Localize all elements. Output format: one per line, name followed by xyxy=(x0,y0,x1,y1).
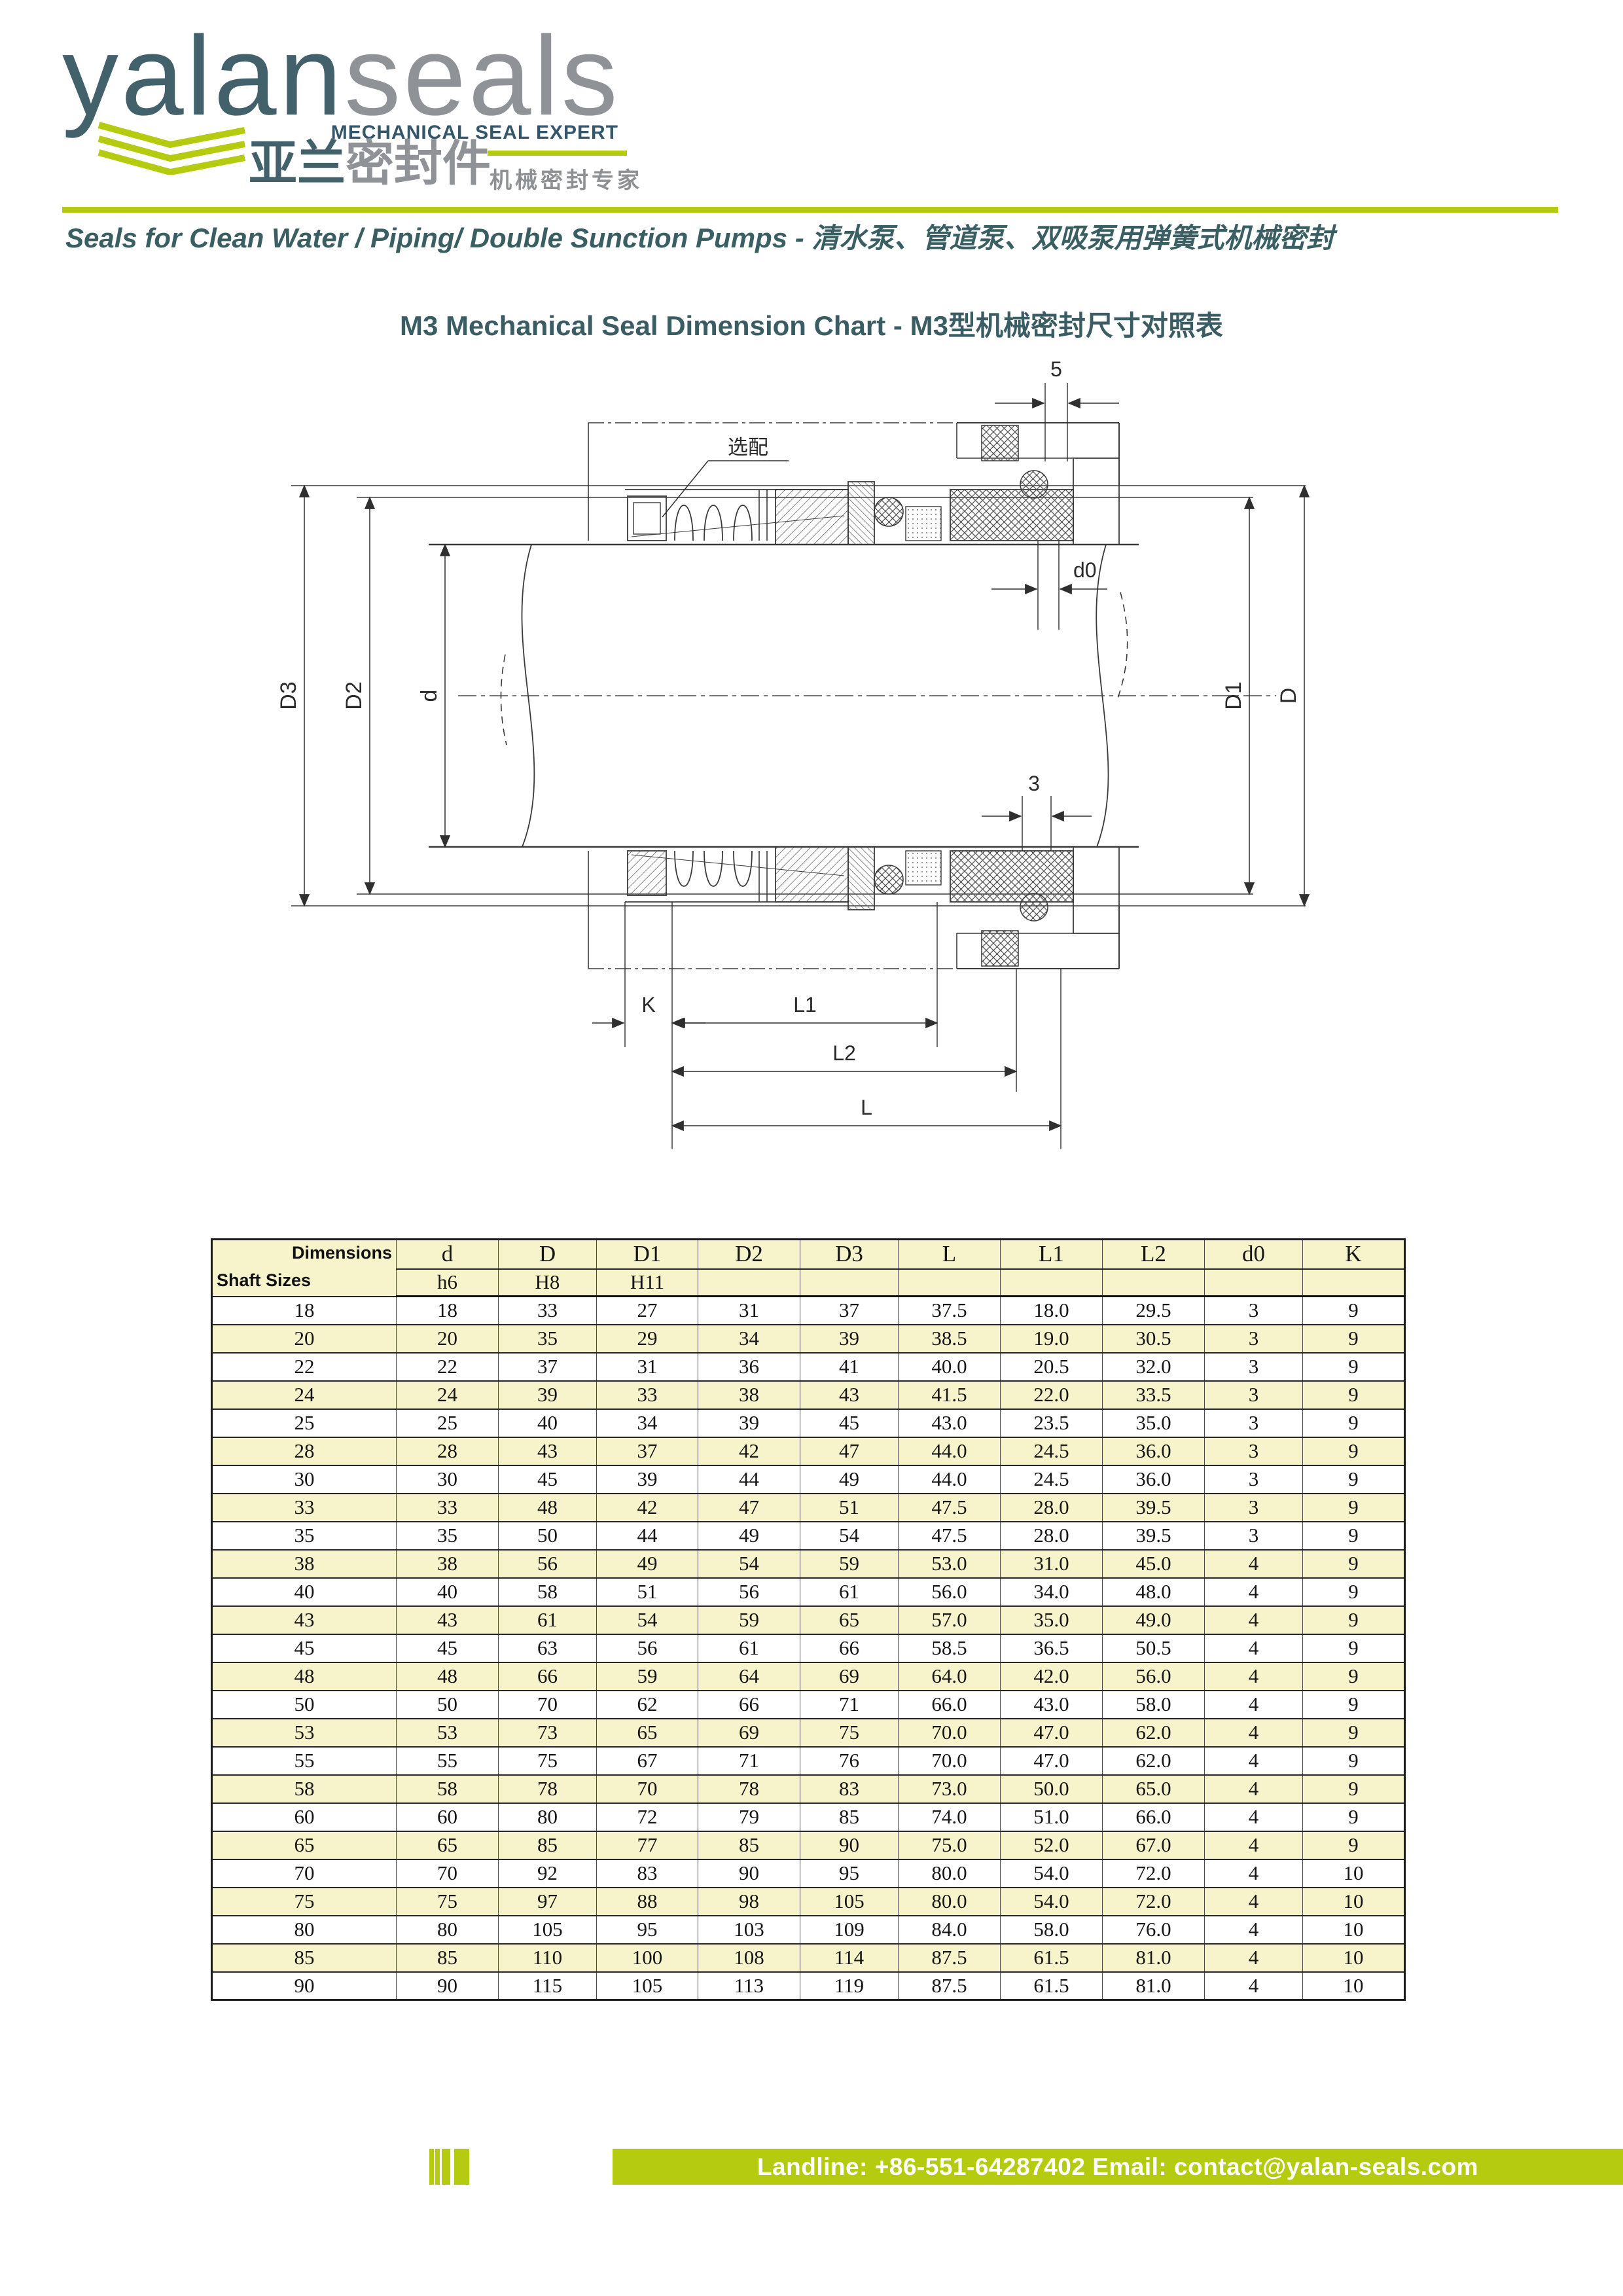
dimension-cell: 72 xyxy=(597,1803,698,1831)
dimension-cell: 70 xyxy=(397,1859,499,1888)
dimension-cell: 39 xyxy=(800,1325,899,1353)
dimension-cell: 47.0 xyxy=(1001,1747,1103,1775)
dimension-cell: 44 xyxy=(698,1465,800,1494)
logo-cn-underline xyxy=(488,151,627,156)
dimension-cell: 4 xyxy=(1205,1606,1303,1634)
dimension-cell: 4 xyxy=(1205,1691,1303,1719)
dimension-cell: 24 xyxy=(397,1381,499,1409)
dimension-cell: 47.5 xyxy=(899,1494,1001,1522)
dimension-cell: 34 xyxy=(698,1325,800,1353)
dimension-cell: 4 xyxy=(1205,1578,1303,1606)
dimension-cell: 9 xyxy=(1303,1747,1405,1775)
dimension-cell: 47 xyxy=(800,1437,899,1465)
dimension-cell: 54 xyxy=(597,1606,698,1634)
dimension-cell: 28.0 xyxy=(1001,1494,1103,1522)
dimension-cell: 56.0 xyxy=(1103,1662,1205,1691)
shaft-size-cell: 48 xyxy=(212,1662,397,1691)
dimension-cell: 43.0 xyxy=(1001,1691,1103,1719)
column-header: D1 xyxy=(597,1240,698,1269)
shaft-size-cell: 65 xyxy=(212,1831,397,1859)
dimension-cell: 4 xyxy=(1205,1803,1303,1831)
dimension-cell: 31.0 xyxy=(1001,1550,1103,1578)
label-L1: L1 xyxy=(793,993,817,1016)
dimension-cell: 110 xyxy=(499,1944,597,1972)
dimension-cell: 62.0 xyxy=(1103,1747,1205,1775)
dimension-cell: 37 xyxy=(499,1353,597,1381)
dimension-cell: 9 xyxy=(1303,1353,1405,1381)
dimension-cell: 30 xyxy=(397,1465,499,1494)
column-header: D xyxy=(499,1240,597,1269)
dimension-cell: 85 xyxy=(800,1803,899,1831)
table-row: 80801059510310984.058.076.0410 xyxy=(212,1916,1405,1944)
dimension-cell: 65 xyxy=(800,1606,899,1634)
dimension-cell: 84.0 xyxy=(899,1916,1001,1944)
dimension-cell: 105 xyxy=(499,1916,597,1944)
dimension-cell: 10 xyxy=(1303,1944,1405,1972)
dimension-cell: 35.0 xyxy=(1001,1606,1103,1634)
corner-cell: DimensionsShaft Sizes xyxy=(212,1240,397,1297)
dimension-cell: 65 xyxy=(397,1831,499,1859)
column-header: K xyxy=(1303,1240,1405,1269)
dimension-cell: 47 xyxy=(698,1494,800,1522)
dimension-cell: 39.5 xyxy=(1103,1522,1205,1550)
footer-stripe xyxy=(442,2149,450,2185)
logo-wordmark: yalanseals xyxy=(62,20,620,132)
dimension-cell: 36.0 xyxy=(1103,1465,1205,1494)
dimension-cell: 10 xyxy=(1303,1888,1405,1916)
dimension-cell: 23.5 xyxy=(1001,1409,1103,1437)
dimension-cell: 55 xyxy=(397,1747,499,1775)
table-row: 28284337424744.024.536.039 xyxy=(212,1437,1405,1465)
table-row: 55557567717670.047.062.049 xyxy=(212,1747,1405,1775)
dimension-cell: 24.5 xyxy=(1001,1465,1103,1494)
dimension-cell: 80.0 xyxy=(899,1888,1001,1916)
dimension-cell: 25 xyxy=(397,1409,499,1437)
dimension-cell: 9 xyxy=(1303,1803,1405,1831)
dimension-cell: 3 xyxy=(1205,1353,1303,1381)
column-header: d xyxy=(397,1240,499,1269)
dimension-cell: 9 xyxy=(1303,1409,1405,1437)
dimension-cell: 60 xyxy=(397,1803,499,1831)
shaft-size-cell: 80 xyxy=(212,1916,397,1944)
table-row: 20203529343938.519.030.539 xyxy=(212,1325,1405,1353)
dimension-cell: 61.5 xyxy=(1001,1944,1103,1972)
dimension-cell: 3 xyxy=(1205,1325,1303,1353)
dimension-cell: 43.0 xyxy=(899,1409,1001,1437)
label-D1: D1 xyxy=(1221,681,1246,709)
dimension-cell: 44.0 xyxy=(899,1437,1001,1465)
shaft-size-cell: 40 xyxy=(212,1578,397,1606)
dimension-cell: 9 xyxy=(1303,1634,1405,1662)
dimension-cell: 73 xyxy=(499,1719,597,1747)
dimension-cell: 9 xyxy=(1303,1775,1405,1803)
dimension-cell: 61 xyxy=(698,1634,800,1662)
dimension-cell: 3 xyxy=(1205,1409,1303,1437)
dimension-cell: 67.0 xyxy=(1103,1831,1205,1859)
dimension-cell: 40 xyxy=(397,1578,499,1606)
table-row: 45456356616658.536.550.549 xyxy=(212,1634,1405,1662)
label-optional: 选配 xyxy=(728,436,768,459)
tolerance-header xyxy=(1103,1269,1205,1297)
dimension-cell: 3 xyxy=(1205,1522,1303,1550)
dimension-cell: 64 xyxy=(698,1662,800,1691)
dimension-cell: 80 xyxy=(397,1916,499,1944)
shaft-size-cell: 75 xyxy=(212,1888,397,1916)
label-5: 5 xyxy=(1050,357,1062,381)
dimension-cell: 85 xyxy=(698,1831,800,1859)
dimension-cell: 51 xyxy=(597,1578,698,1606)
dimension-cell: 65 xyxy=(597,1719,698,1747)
dimension-cell: 4 xyxy=(1205,1719,1303,1747)
dimension-cell: 47.0 xyxy=(1001,1719,1103,1747)
dimension-cell: 75.0 xyxy=(899,1831,1001,1859)
dimension-cell: 90 xyxy=(800,1831,899,1859)
corner-label-dimensions: Dimensions xyxy=(292,1243,392,1263)
dimension-cell: 62.0 xyxy=(1103,1719,1205,1747)
dimension-cell: 85 xyxy=(397,1944,499,1972)
dimension-cell: 4 xyxy=(1205,1859,1303,1888)
dimension-cell: 54.0 xyxy=(1001,1859,1103,1888)
logo-cn-secondary: 密封件 xyxy=(346,136,491,190)
footer-bar: Landline: +86-551-64287402 Email: contac… xyxy=(613,2149,1623,2185)
dimension-cell: 20 xyxy=(397,1325,499,1353)
dimension-cell: 50 xyxy=(397,1691,499,1719)
shaft-size-cell: 50 xyxy=(212,1691,397,1719)
dimension-cell: 54.0 xyxy=(1001,1888,1103,1916)
dimension-cell: 71 xyxy=(800,1691,899,1719)
label-3: 3 xyxy=(1028,772,1040,795)
dimension-cell: 28.0 xyxy=(1001,1522,1103,1550)
shaft-size-cell: 35 xyxy=(212,1522,397,1550)
dimension-cell: 54 xyxy=(698,1550,800,1578)
dimension-cell: 10 xyxy=(1303,1972,1405,2000)
dimension-cell: 48.0 xyxy=(1103,1578,1205,1606)
dimension-cell: 98 xyxy=(698,1888,800,1916)
shaft-size-cell: 20 xyxy=(212,1325,397,1353)
dimension-cell: 63 xyxy=(499,1634,597,1662)
dimension-cell: 50.0 xyxy=(1001,1775,1103,1803)
table-row: 858511010010811487.561.581.0410 xyxy=(212,1944,1405,1972)
dimension-cell: 28 xyxy=(397,1437,499,1465)
dimension-cell: 57.0 xyxy=(899,1606,1001,1634)
o-ring xyxy=(874,497,903,526)
dimension-cell: 103 xyxy=(698,1916,800,1944)
dimension-cell: 36.5 xyxy=(1001,1634,1103,1662)
dimension-cell: 9 xyxy=(1303,1494,1405,1522)
shaft-size-cell: 38 xyxy=(212,1550,397,1578)
dimension-cell: 29.5 xyxy=(1103,1297,1205,1325)
footer-stripe xyxy=(435,2149,440,2185)
dimension-cell: 83 xyxy=(800,1775,899,1803)
dimension-cell: 49.0 xyxy=(1103,1606,1205,1634)
dimension-cell: 10 xyxy=(1303,1916,1405,1944)
dimension-cell: 58 xyxy=(397,1775,499,1803)
table-row: 48486659646964.042.056.049 xyxy=(212,1662,1405,1691)
label-K: K xyxy=(641,993,655,1016)
dimension-cell: 66.0 xyxy=(1103,1803,1205,1831)
dimension-cell: 70.0 xyxy=(899,1747,1001,1775)
dimension-cell: 95 xyxy=(597,1916,698,1944)
dimension-cell: 40 xyxy=(499,1409,597,1437)
dimension-cell: 75 xyxy=(499,1747,597,1775)
dimension-cell: 51 xyxy=(800,1494,899,1522)
dimension-cell: 4 xyxy=(1205,1550,1303,1578)
table-row: 38385649545953.031.045.049 xyxy=(212,1550,1405,1578)
corner-label-shaft-sizes: Shaft Sizes xyxy=(217,1270,311,1291)
dimension-cell: 71 xyxy=(698,1747,800,1775)
dimension-cell: 48 xyxy=(499,1494,597,1522)
column-header: L xyxy=(899,1240,1001,1269)
dimension-cell: 59 xyxy=(800,1550,899,1578)
dimension-cell: 47.5 xyxy=(899,1522,1001,1550)
dimension-cell: 34 xyxy=(597,1409,698,1437)
column-header: L2 xyxy=(1103,1240,1205,1269)
dimension-cell: 4 xyxy=(1205,1775,1303,1803)
dimension-cell: 9 xyxy=(1303,1719,1405,1747)
table-row: 65658577859075.052.067.049 xyxy=(212,1831,1405,1859)
dimension-cell: 45.0 xyxy=(1103,1550,1205,1578)
dimension-cell: 58.5 xyxy=(899,1634,1001,1662)
technical-drawing: D3 D2 d D1 D 5 d0 3 K L1 L2 L 选配 xyxy=(262,353,1400,1230)
dimension-cell: 9 xyxy=(1303,1691,1405,1719)
dimension-cell: 38 xyxy=(698,1381,800,1409)
dimension-cell: 9 xyxy=(1303,1831,1405,1859)
table-row: 18183327313737.518.029.539 xyxy=(212,1297,1405,1325)
label-d: d xyxy=(417,690,442,702)
drive-collar xyxy=(776,490,848,545)
table-row: 33334842475147.528.039.539 xyxy=(212,1494,1405,1522)
dimension-cell: 44 xyxy=(597,1522,698,1550)
shaft-size-cell: 24 xyxy=(212,1381,397,1409)
dimension-cell: 87.5 xyxy=(899,1944,1001,1972)
dimension-cell: 76.0 xyxy=(1103,1916,1205,1944)
dimension-cell: 9 xyxy=(1303,1578,1405,1606)
shaft-size-cell: 53 xyxy=(212,1719,397,1747)
dimension-cell: 59 xyxy=(597,1662,698,1691)
tolerance-header xyxy=(1205,1269,1303,1297)
label-D3: D3 xyxy=(276,681,301,709)
product-tagline: Seals for Clean Water / Piping/ Double S… xyxy=(65,216,1334,256)
dimension-cell: 38 xyxy=(397,1550,499,1578)
dimension-cell: 4 xyxy=(1205,1916,1303,1944)
dimension-cell: 18.0 xyxy=(1001,1297,1103,1325)
footer-contact: Landline: +86-551-64287402 Email: contac… xyxy=(757,2149,1478,2185)
shaft-size-cell: 33 xyxy=(212,1494,397,1522)
dimension-cell: 22.0 xyxy=(1001,1381,1103,1409)
page-title: M3 Mechanical Seal Dimension Chart - M3型… xyxy=(0,304,1623,344)
table-row: 50507062667166.043.058.049 xyxy=(212,1691,1405,1719)
dimension-cell: 43 xyxy=(499,1437,597,1465)
tolerance-header xyxy=(1303,1269,1405,1297)
footer-stripe xyxy=(454,2149,469,2185)
dimension-cell: 32.0 xyxy=(1103,1353,1205,1381)
table-row: 757597889810580.054.072.0410 xyxy=(212,1888,1405,1916)
logo-seals: seals xyxy=(344,13,620,139)
dimension-cell: 40.0 xyxy=(899,1353,1001,1381)
dimension-cell: 42 xyxy=(698,1437,800,1465)
column-header: D3 xyxy=(800,1240,899,1269)
table-row: 58587870788373.050.065.049 xyxy=(212,1775,1405,1803)
dimension-cell: 72.0 xyxy=(1103,1888,1205,1916)
dimension-cell: 80.0 xyxy=(899,1859,1001,1888)
dimension-cell: 4 xyxy=(1205,1888,1303,1916)
dimension-cell: 37 xyxy=(800,1297,899,1325)
dimension-cell: 45 xyxy=(800,1409,899,1437)
dimension-cell: 33 xyxy=(397,1494,499,1522)
dimension-cell: 3 xyxy=(1205,1297,1303,1325)
dimension-cell: 9 xyxy=(1303,1381,1405,1409)
dimension-cell: 69 xyxy=(800,1662,899,1691)
dimension-cell: 100 xyxy=(597,1944,698,1972)
shaft-size-cell: 25 xyxy=(212,1409,397,1437)
dimension-table: DimensionsShaft SizesdDD1D2D3LL1L2d0Kh6H… xyxy=(211,1238,1406,2001)
dimension-cell: 4 xyxy=(1205,1944,1303,1972)
dimension-cell: 97 xyxy=(499,1888,597,1916)
dimension-cell: 31 xyxy=(597,1353,698,1381)
dimension-cell: 70.0 xyxy=(899,1719,1001,1747)
dimension-cell: 43 xyxy=(397,1606,499,1634)
dimension-cell: 44.0 xyxy=(899,1465,1001,1494)
table-row: 25254034394543.023.535.039 xyxy=(212,1409,1405,1437)
dimension-cell: 56 xyxy=(499,1550,597,1578)
table-row: 22223731364140.020.532.039 xyxy=(212,1353,1405,1381)
shaft-size-cell: 85 xyxy=(212,1944,397,1972)
divider-rule xyxy=(62,207,1558,213)
dimension-cell: 66 xyxy=(499,1662,597,1691)
dimension-cell: 48 xyxy=(397,1662,499,1691)
dimension-cell: 95 xyxy=(800,1859,899,1888)
dimension-cell: 45 xyxy=(397,1634,499,1662)
dimension-cell: 35 xyxy=(499,1325,597,1353)
dimension-cell: 90 xyxy=(397,1972,499,2000)
dimension-cell: 9 xyxy=(1303,1437,1405,1465)
dimension-cell: 92 xyxy=(499,1859,597,1888)
dimension-cell: 34.0 xyxy=(1001,1578,1103,1606)
dimension-cell: 66 xyxy=(800,1634,899,1662)
table-row: 60608072798574.051.066.049 xyxy=(212,1803,1405,1831)
shaft-size-cell: 30 xyxy=(212,1465,397,1494)
column-header: D2 xyxy=(698,1240,800,1269)
label-L2: L2 xyxy=(832,1041,856,1065)
dimension-cell: 9 xyxy=(1303,1550,1405,1578)
dimension-cell: 80 xyxy=(499,1803,597,1831)
dimension-cell: 10 xyxy=(1303,1859,1405,1888)
spring-coil xyxy=(675,505,693,541)
stationary-seat xyxy=(950,490,1073,541)
dimension-cell: 18 xyxy=(397,1297,499,1325)
dimension-cell: 115 xyxy=(499,1972,597,2000)
dimension-cell: 4 xyxy=(1205,1662,1303,1691)
dimension-cell: 70 xyxy=(597,1775,698,1803)
gland-plate xyxy=(1073,458,1119,545)
dimension-cell: 70 xyxy=(499,1691,597,1719)
dimension-cell: 31 xyxy=(698,1297,800,1325)
drawing-geometry xyxy=(291,423,1306,969)
dimension-cell: 29 xyxy=(597,1325,698,1353)
label-d0: d0 xyxy=(1073,558,1097,582)
dimension-cell: 37.5 xyxy=(899,1297,1001,1325)
dimension-cell: 65.0 xyxy=(1103,1775,1205,1803)
dimension-cell: 30.5 xyxy=(1103,1325,1205,1353)
dimension-cell: 9 xyxy=(1303,1297,1405,1325)
dimension-cell: 61 xyxy=(800,1578,899,1606)
dimension-cell: 52.0 xyxy=(1001,1831,1103,1859)
dimension-cell: 83 xyxy=(597,1859,698,1888)
dimension-cell: 78 xyxy=(499,1775,597,1803)
dimension-cell: 22 xyxy=(397,1353,499,1381)
dimension-cell: 33.5 xyxy=(1103,1381,1205,1409)
dimension-cell: 39 xyxy=(499,1381,597,1409)
dimension-cell: 88 xyxy=(597,1888,698,1916)
dimension-cell: 81.0 xyxy=(1103,1944,1205,1972)
logo-chevron-icon xyxy=(97,120,247,175)
catalog-page: yalanseals MECHANICAL SEAL EXPERT 亚兰密封件 … xyxy=(0,0,1623,2296)
dimension-cell: 49 xyxy=(800,1465,899,1494)
dimension-cell: 114 xyxy=(800,1944,899,1972)
dimension-cell: 105 xyxy=(597,1972,698,2000)
dimension-cell: 69 xyxy=(698,1719,800,1747)
dimension-cell: 33 xyxy=(597,1381,698,1409)
dimension-cell: 76 xyxy=(800,1747,899,1775)
dimension-cell: 90 xyxy=(698,1859,800,1888)
tolerance-header: h6 xyxy=(397,1269,499,1297)
table-row: 909011510511311987.561.581.0410 xyxy=(212,1972,1405,2000)
dimension-cell: 75 xyxy=(397,1888,499,1916)
tolerance-header xyxy=(698,1269,800,1297)
dimension-cell: 119 xyxy=(800,1972,899,2000)
dimension-cell: 19.0 xyxy=(1001,1325,1103,1353)
dimension-cell: 79 xyxy=(698,1803,800,1831)
shaft-size-cell: 58 xyxy=(212,1775,397,1803)
dimension-cell: 39 xyxy=(698,1409,800,1437)
dimension-cell: 24.5 xyxy=(1001,1437,1103,1465)
label-D2: D2 xyxy=(342,681,366,709)
dimension-cell: 74.0 xyxy=(899,1803,1001,1831)
dimension-cell: 9 xyxy=(1303,1662,1405,1691)
dimension-cell: 38.5 xyxy=(899,1325,1001,1353)
dimension-cell: 3 xyxy=(1205,1437,1303,1465)
dimension-cell: 54 xyxy=(800,1522,899,1550)
dimension-cell: 36.0 xyxy=(1103,1437,1205,1465)
table-row: 43436154596557.035.049.049 xyxy=(212,1606,1405,1634)
dimension-cell: 4 xyxy=(1205,1972,1303,2000)
dimension-cell: 9 xyxy=(1303,1325,1405,1353)
dimension-cell: 67 xyxy=(597,1747,698,1775)
dimension-cell: 109 xyxy=(800,1916,899,1944)
label-L: L xyxy=(861,1096,872,1119)
dimension-cell: 27 xyxy=(597,1297,698,1325)
dimension-cell: 41 xyxy=(800,1353,899,1381)
dimension-cell: 39 xyxy=(597,1465,698,1494)
dimension-cell: 39.5 xyxy=(1103,1494,1205,1522)
dimension-cell: 105 xyxy=(800,1888,899,1916)
dimension-cell: 61 xyxy=(499,1606,597,1634)
dimension-cell: 9 xyxy=(1303,1522,1405,1550)
dimension-cell: 9 xyxy=(1303,1465,1405,1494)
dimension-cell: 66 xyxy=(698,1691,800,1719)
dimension-cell: 45 xyxy=(499,1465,597,1494)
dimension-cell: 85 xyxy=(499,1831,597,1859)
dimension-cell: 9 xyxy=(1303,1606,1405,1634)
shaft-size-cell: 70 xyxy=(212,1859,397,1888)
dimension-cell: 75 xyxy=(800,1719,899,1747)
dimension-cell: 113 xyxy=(698,1972,800,2000)
table-row: 53537365697570.047.062.049 xyxy=(212,1719,1405,1747)
label-D: D xyxy=(1276,688,1301,704)
column-header: d0 xyxy=(1205,1240,1303,1269)
dimension-cell: 66.0 xyxy=(899,1691,1001,1719)
dimension-cell: 43 xyxy=(800,1381,899,1409)
